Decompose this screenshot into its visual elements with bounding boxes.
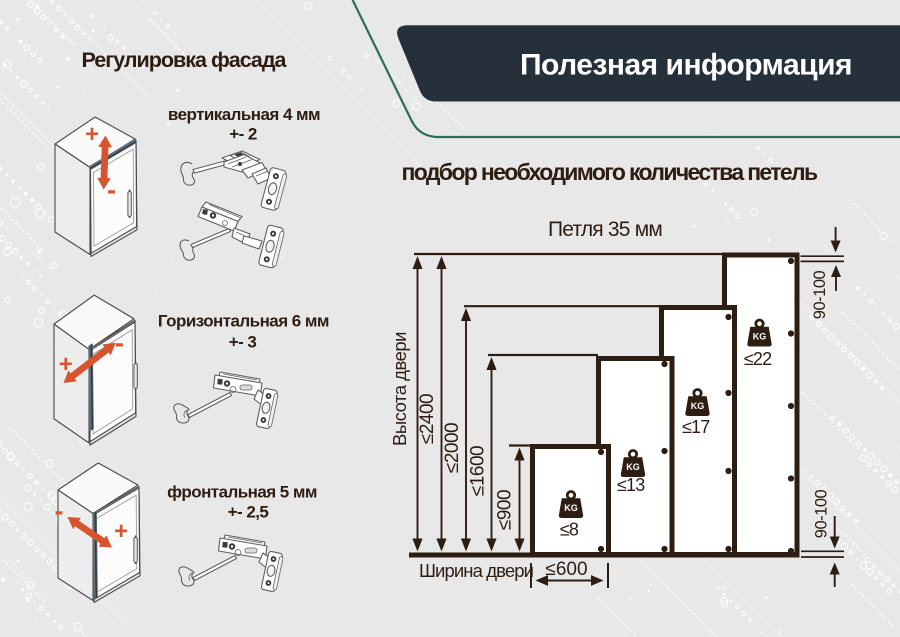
svg-text:фронтальная 5 мм: фронтальная 5 мм: [167, 483, 317, 502]
svg-text:+- 2: +- 2: [229, 125, 257, 144]
svg-text:KG: KG: [564, 503, 578, 513]
svg-text:90-100: 90-100: [813, 489, 831, 538]
svg-text:Регулировка фасада: Регулировка фасада: [82, 48, 288, 72]
svg-text:≤17: ≤17: [682, 417, 710, 437]
svg-text:≤2000: ≤2000: [442, 423, 463, 473]
svg-text:-: -: [55, 496, 64, 526]
svg-text:-: -: [115, 328, 124, 358]
svg-text:Высота двери: Высота двери: [389, 332, 410, 446]
svg-text:≤600: ≤600: [545, 559, 587, 580]
svg-text:+: +: [114, 518, 128, 545]
svg-text:90-100: 90-100: [811, 270, 829, 319]
svg-text:≤13: ≤13: [617, 475, 645, 495]
svg-text:≤1600: ≤1600: [468, 446, 489, 496]
svg-text:≤2400: ≤2400: [417, 394, 438, 444]
svg-text:KG: KG: [626, 462, 640, 472]
svg-text:вертикальная 4 мм: вертикальная 4 мм: [168, 105, 320, 124]
svg-text:Горизонтальная 6 мм: Горизонтальная 6 мм: [158, 312, 329, 331]
svg-text:KG: KG: [691, 401, 705, 411]
svg-text:подбор необходимого количества: подбор необходимого количества петель: [402, 159, 818, 185]
svg-text:≤22: ≤22: [744, 349, 772, 369]
svg-text:Ширина двери: Ширина двери: [419, 560, 534, 581]
svg-text:≤8: ≤8: [560, 520, 579, 540]
svg-text:+- 2,5: +- 2,5: [228, 503, 269, 522]
svg-text:+: +: [59, 351, 73, 378]
svg-text:+- 3: +- 3: [229, 333, 257, 352]
svg-text:-: -: [107, 175, 116, 205]
svg-text:Петля 35 мм: Петля 35 мм: [548, 218, 662, 241]
svg-text:KG: KG: [753, 332, 767, 342]
svg-text:+: +: [85, 121, 99, 148]
svg-text:≤900: ≤900: [495, 490, 516, 530]
svg-text:Полезная информация: Полезная информация: [520, 49, 852, 82]
